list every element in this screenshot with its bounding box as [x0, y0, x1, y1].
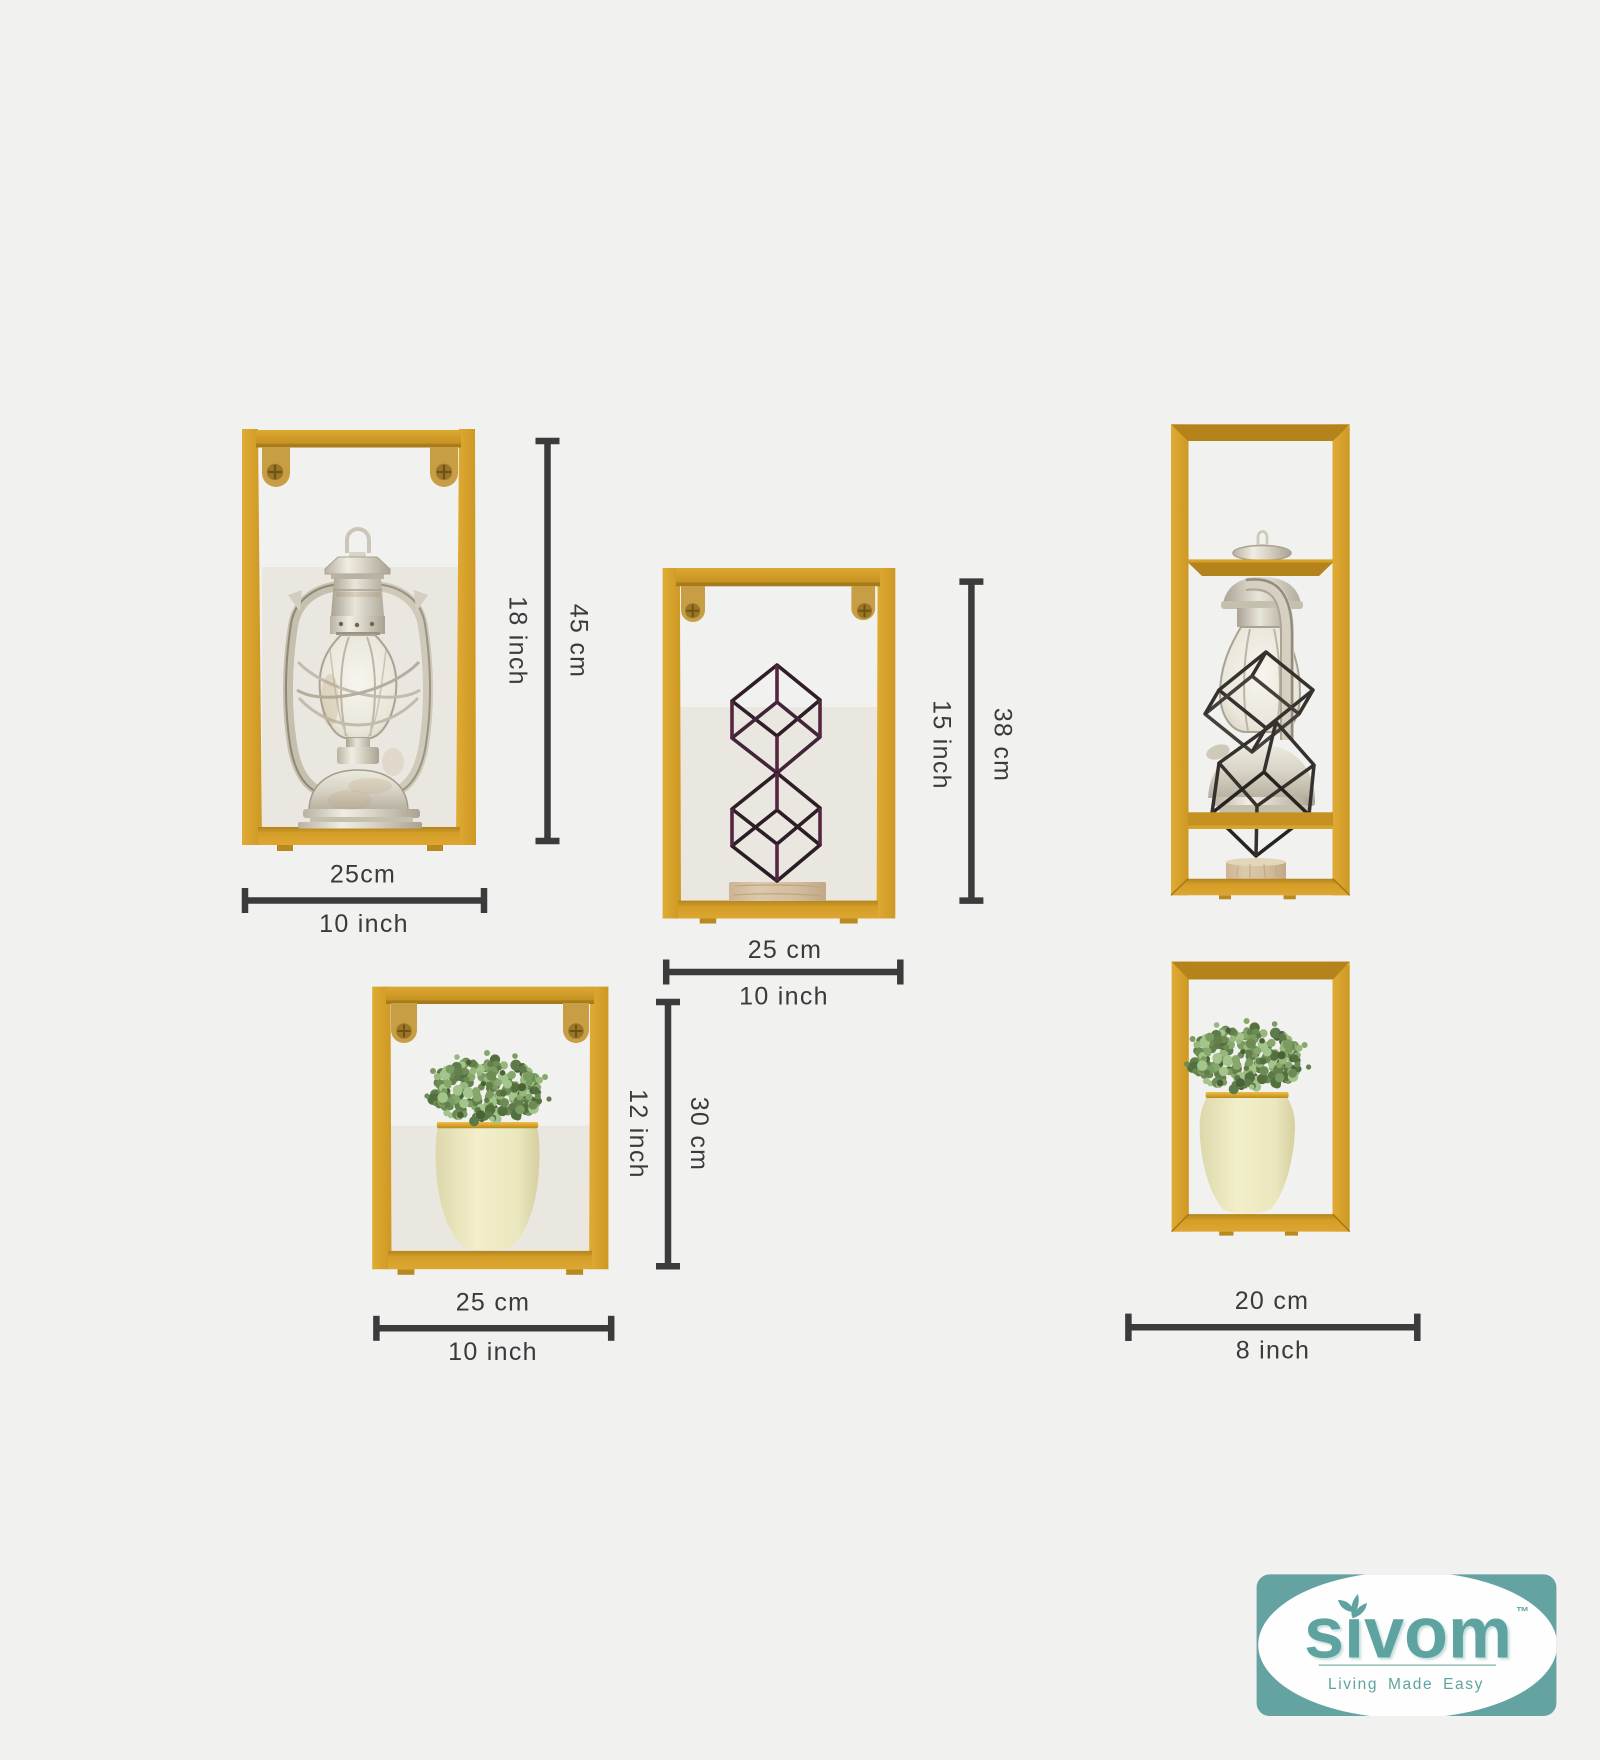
svg-text:38 cm: 38 cm: [988, 708, 1016, 783]
svg-text:10 inch: 10 inch: [739, 983, 829, 1011]
svg-text:10 inch: 10 inch: [319, 910, 409, 938]
svg-text:18 inch: 18 inch: [504, 596, 532, 686]
svg-text:15 inch: 15 inch: [927, 700, 955, 790]
svg-text:10 inch: 10 inch: [448, 1338, 538, 1366]
svg-text:™: ™: [1516, 1604, 1529, 1619]
svg-text:sıvom: sıvom: [1304, 1594, 1512, 1674]
svg-text:12 inch: 12 inch: [624, 1089, 652, 1179]
svg-text:Living Made Easy: Living Made Easy: [1328, 1676, 1484, 1693]
svg-text:25 cm: 25 cm: [456, 1288, 531, 1316]
svg-text:30 cm: 30 cm: [685, 1097, 713, 1172]
svg-text:45 cm: 45 cm: [565, 604, 593, 679]
svg-text:20 cm: 20 cm: [1235, 1287, 1310, 1315]
svg-text:25 cm: 25 cm: [748, 936, 823, 964]
svg-text:25cm: 25cm: [330, 861, 396, 889]
svg-text:8 inch: 8 inch: [1236, 1337, 1311, 1365]
